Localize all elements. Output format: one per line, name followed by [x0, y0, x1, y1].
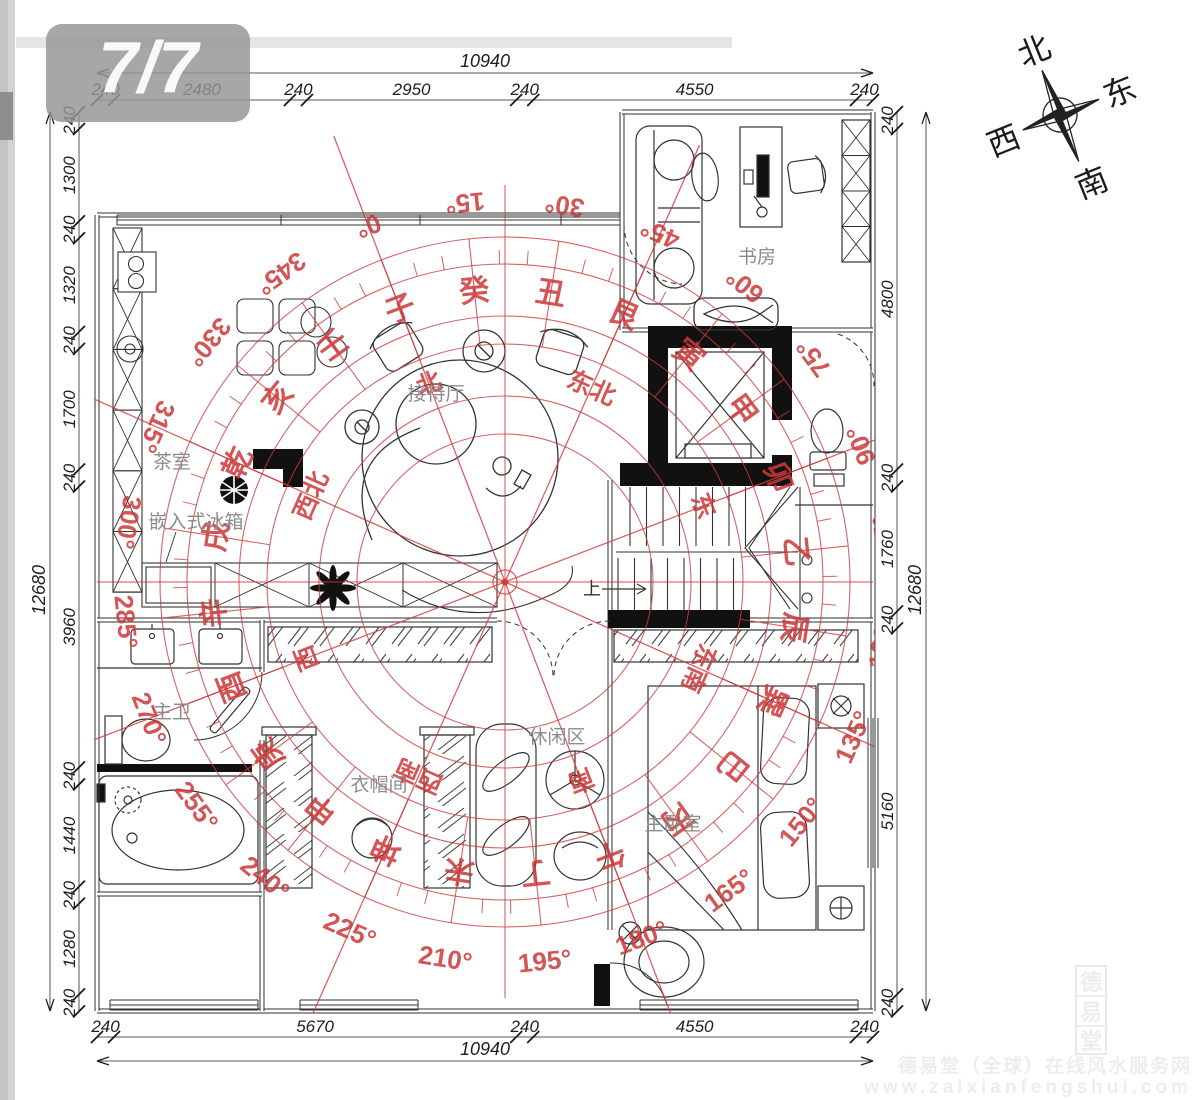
toilet-tank [105, 716, 122, 764]
luopan-spoke [593, 888, 597, 901]
dim-label: 1700 [60, 390, 79, 428]
mountain-label: 辛 [196, 596, 233, 629]
dim-label: 240 [60, 761, 79, 791]
luopan-spoke [659, 292, 666, 304]
reception-furniture [345, 315, 591, 613]
tea-chair [279, 299, 315, 333]
luopan-spoke [230, 396, 242, 404]
dim-label: 240 [878, 463, 897, 493]
degree-label: 285° [108, 594, 143, 651]
rose-south-label: 南 [1070, 160, 1113, 205]
luopan-spoke [68, 388, 505, 582]
luopan-spoke [334, 297, 341, 309]
degree-label: 255° [169, 775, 225, 836]
dim-total: 10940 [460, 51, 510, 71]
fridge-leader-line [166, 532, 176, 562]
room-label-tea-room: 茶室 [153, 451, 191, 473]
cabinet-cell-x [403, 563, 497, 607]
luopan-spoke [811, 490, 824, 494]
cabinet-cell-x [842, 120, 870, 156]
room-label-master-bath: 主卫 [153, 701, 191, 723]
dim-label: 240 [60, 463, 79, 493]
mountain-label: 午 [590, 834, 630, 876]
stairs-up-label: 上 [583, 579, 601, 599]
luopan-spoke [783, 736, 795, 743]
dim-label: 1300 [60, 156, 79, 194]
luopan-spoke [344, 860, 351, 872]
dim-label: 240 [60, 880, 79, 910]
luopan-spoke [174, 559, 188, 560]
dim-label: 4550 [676, 80, 714, 99]
door-swing [838, 334, 874, 386]
seal-char: 堂 [1080, 1029, 1102, 1054]
degree-label: 15° [444, 186, 486, 220]
luopan-spoke [566, 894, 569, 908]
luopan-spoke [183, 502, 197, 505]
degree-label: 225° [319, 905, 380, 954]
degree-label: 45° [636, 212, 684, 255]
mountain-label: 巳 [710, 744, 755, 788]
dim-label: 240 [283, 80, 313, 99]
tea-chair [237, 299, 273, 333]
page-badge: 7/7 [46, 24, 250, 122]
luopan-spoke [215, 421, 227, 428]
rose-east-label: 东 [1098, 69, 1141, 114]
dim-label: 240 [878, 605, 897, 635]
luopan-spoke [527, 251, 528, 265]
mountain-label: 未 [442, 852, 477, 889]
mountain-label: 乾 [217, 443, 259, 484]
desk-chair [787, 154, 828, 197]
closet-hatched [614, 630, 858, 662]
mountain-label: 酉 [212, 667, 254, 707]
luopan-spoke [220, 746, 232, 753]
watermark: 德 易 堂 德易堂（全球）在线风水服务网 www.zaixianfengshui… [863, 966, 1192, 1098]
mountain-label: 丑 [533, 275, 568, 312]
luopan-spoke [734, 803, 744, 813]
tea-chair [279, 341, 315, 375]
luopan-spoke [609, 268, 614, 281]
direction-label: 南 [564, 762, 597, 797]
hall-detail [802, 593, 812, 603]
luopan-spoke [822, 604, 836, 605]
luopan-spoke [669, 855, 676, 867]
degree-label: 75° [790, 333, 837, 382]
page-number: 7/7 [98, 28, 201, 108]
luopan-spoke [482, 899, 483, 913]
dim-label: 240 [60, 215, 79, 245]
dim-label: 1280 [60, 930, 79, 968]
luopan-spoke [683, 307, 691, 319]
room-label-leisure: 休闲区 [528, 726, 585, 748]
luopan-spoke [397, 883, 402, 896]
luopan-spoke [442, 256, 445, 270]
watermark-seal-text: 德 易 堂 [1080, 970, 1102, 1054]
luopan-spoke [413, 263, 417, 276]
compass-rose-star [1005, 55, 1118, 177]
dim-label: 240 [510, 1017, 540, 1036]
scan-smudge [0, 92, 13, 140]
cabinet-cell-x [842, 227, 870, 263]
floorplan-drawing: 2402480240295024045502401094024056702404… [0, 0, 1200, 1100]
seal-char: 易 [1080, 1000, 1102, 1025]
rose-north-label: 北 [1013, 28, 1056, 73]
dim-label: 240 [510, 80, 540, 99]
luopan-spoke [266, 351, 276, 361]
person-figure [493, 457, 511, 475]
room-label-study: 书房 [738, 246, 776, 268]
bedroom-furniture [610, 684, 864, 1005]
dim-label: 1440 [60, 816, 79, 854]
room-label-cloakroom: 衣帽间 [350, 774, 407, 796]
rose-west-label: 西 [982, 118, 1025, 163]
degree-label: 345° [250, 246, 311, 302]
door-leaf [594, 964, 610, 1006]
room-label-fridge: 嵌入式冰箱 [148, 511, 243, 533]
luopan-spoke [425, 891, 428, 905]
dim-label: 1760 [878, 529, 897, 567]
degree-label: 135° [828, 706, 877, 767]
shower-head [115, 787, 141, 813]
luopan-spoke [186, 670, 199, 674]
degree-label: 60° [720, 262, 769, 310]
plant-star [310, 565, 356, 611]
mountain-label: 子 [380, 289, 420, 331]
mountain-label: 乙 [777, 535, 813, 568]
luopan-spoke [505, 145, 699, 582]
mountain-label: 壬 [312, 324, 356, 368]
luopan-spoke [179, 643, 193, 646]
cabinet-cell-x [113, 349, 142, 410]
cabinet-cell-x [113, 289, 142, 350]
luopan-spoke [745, 364, 756, 373]
cabinet-cell-x [842, 156, 870, 192]
dim-label: 4800 [878, 280, 897, 318]
luopan-spoke [817, 519, 831, 522]
direction-label: 东 [685, 489, 721, 523]
luopan-spoke [791, 436, 804, 442]
dim-total: 10940 [460, 1039, 510, 1059]
dim-label: 1320 [60, 266, 79, 304]
room-label-reception: 接待厅 [407, 383, 464, 405]
sink [199, 629, 242, 664]
luopan-spoke [582, 260, 585, 274]
dim-label: 5160 [878, 792, 897, 830]
watermark-line1: 德易堂（全球）在线风水服务网 [898, 1054, 1192, 1077]
luopan-spoke [319, 846, 327, 858]
luopan-spoke [359, 284, 365, 297]
direction-label: 东北 [563, 364, 620, 411]
degree-label: 150° [773, 791, 830, 852]
luopan-spoke [769, 760, 781, 768]
luopan-spoke [191, 474, 204, 479]
degree-label: 180° [611, 914, 672, 961]
dim-total: 12680 [29, 565, 49, 615]
double-door-swing [497, 621, 610, 677]
degree-label: 195° [517, 943, 574, 978]
dim-label: 240 [60, 988, 79, 1018]
mountain-label: 坤 [366, 828, 407, 870]
dim-label: 240 [878, 988, 897, 1018]
degree-label: 30° [543, 188, 587, 224]
scan-edge-strip-dark [0, 0, 8, 1100]
mountain-label: 辰 [775, 610, 812, 645]
mountain-label: 亥 [255, 376, 300, 421]
room-label-master-bedroom: 主卧室 [644, 813, 701, 835]
dim-label: 2950 [392, 80, 431, 99]
mountain-label: 癸 [457, 273, 492, 310]
dim-label: 240 [849, 80, 879, 99]
luopan-spoke [207, 721, 220, 727]
luopan-center-dot [502, 579, 509, 586]
mountain-label: 甲 [719, 389, 763, 433]
dim-label: 240 [878, 106, 897, 136]
dim-label: 3960 [60, 608, 79, 646]
degree-label: 330° [180, 312, 237, 373]
luopan-spoke [714, 822, 723, 833]
built-in-fridge-box [146, 567, 211, 603]
cabinet-cell-x [842, 191, 870, 227]
dim-label: 240 [849, 1017, 879, 1036]
compass-rose: 北 东 南 西 [955, 4, 1169, 230]
dim-label: 240 [90, 1017, 120, 1036]
seal-char: 德 [1080, 970, 1102, 995]
dim-label: 4550 [676, 1017, 714, 1036]
dim-label: 240 [60, 326, 79, 356]
watermark-line2: www.zaixianfengshui.com [863, 1077, 1192, 1098]
dim-total: 12680 [905, 565, 925, 615]
stove [118, 252, 156, 292]
floorplan-page: { "badge": { "text": "7/7" }, "plan": { … [0, 0, 1200, 1100]
mountain-label: 丁 [519, 854, 552, 890]
door-swing [610, 963, 667, 1005]
monitor [757, 155, 769, 197]
dim-label: 5670 [296, 1017, 334, 1036]
degree-label: 210° [416, 939, 474, 977]
